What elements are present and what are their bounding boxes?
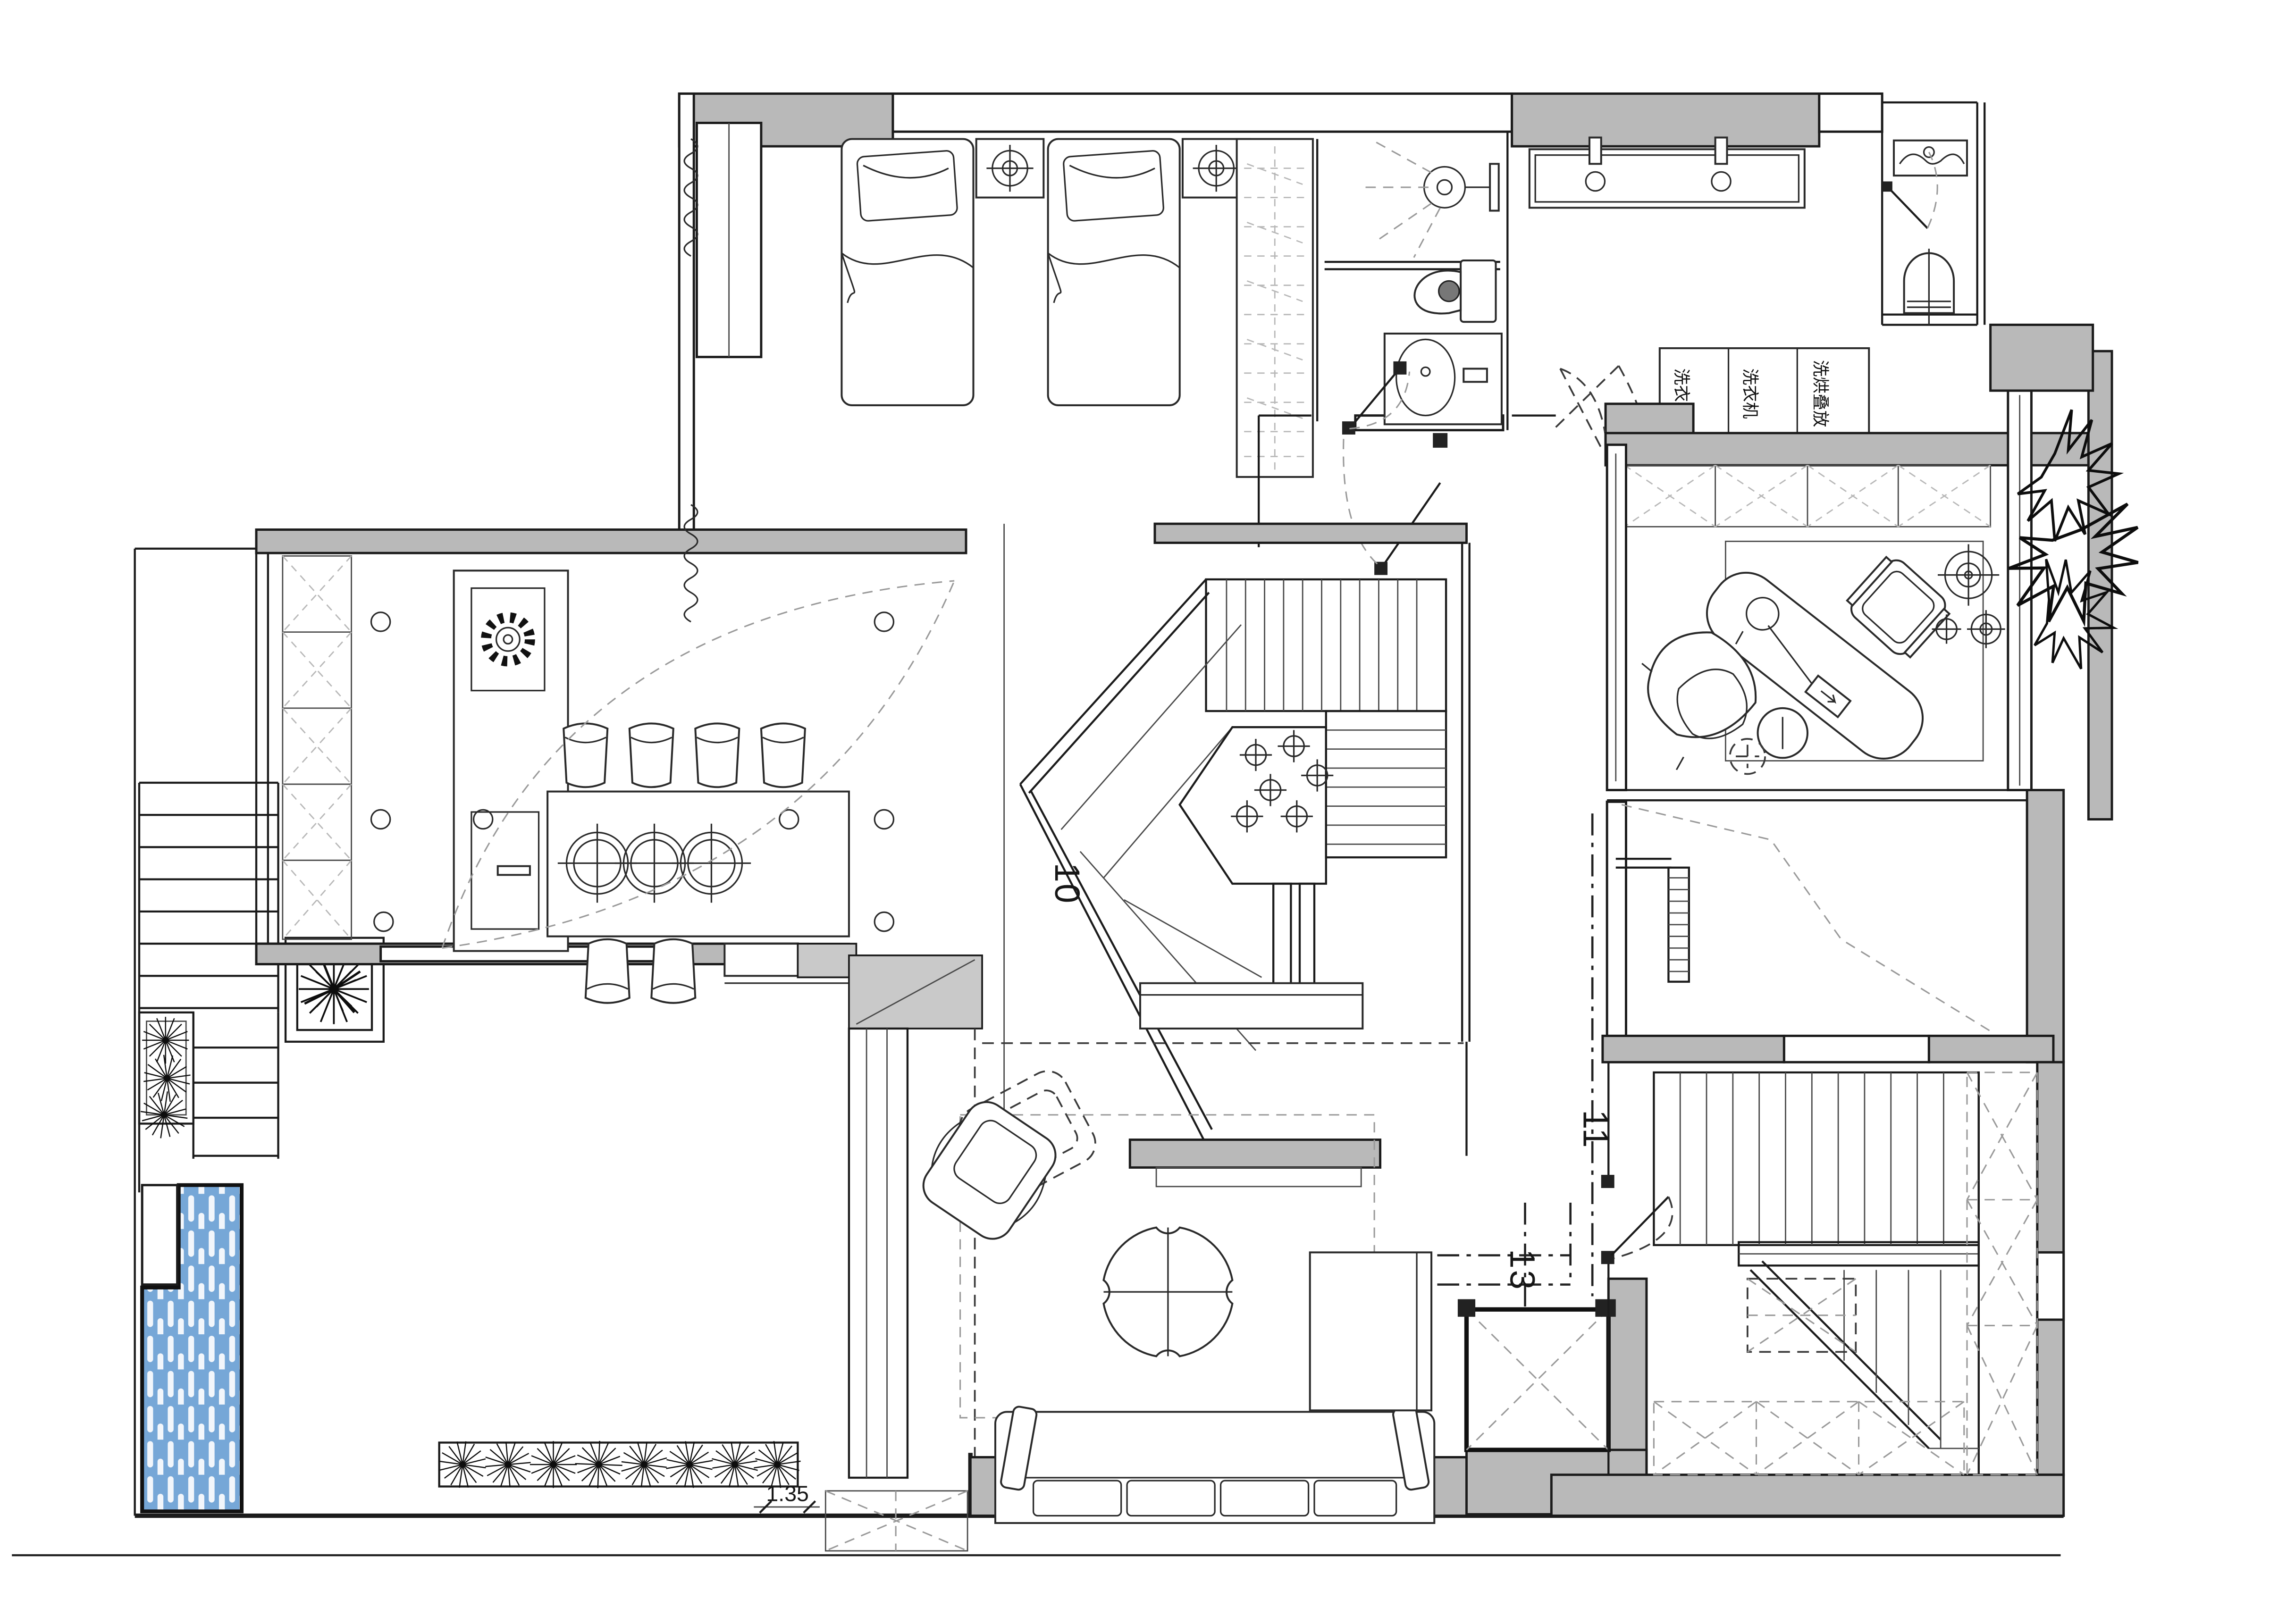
coffee-table xyxy=(1103,1228,1232,1356)
ceiling-fan-icons xyxy=(1932,544,2005,648)
tv-console xyxy=(1140,983,1362,1029)
stairs-upper-flight xyxy=(1654,1072,1978,1245)
flower-bed-row xyxy=(436,1431,809,1498)
elevator-zone-label: 13 xyxy=(1503,1249,1542,1291)
shower-head-icon xyxy=(1358,141,1499,258)
window-column xyxy=(849,1029,908,1478)
study-cabinets xyxy=(1624,465,1990,527)
wardrobe-row-dashed xyxy=(1654,1072,2037,1475)
study-room xyxy=(1606,391,2088,800)
kitchen-cabinets xyxy=(283,556,352,939)
living-room xyxy=(798,944,1478,1551)
desk-chair xyxy=(1842,552,1954,663)
floor-plan-canvas: 1.35 xyxy=(0,0,2295,1624)
washer-dryer-stack-label: 洗烘叠放 xyxy=(1811,360,1830,427)
nightstand-1 xyxy=(976,139,1044,198)
shrub-planter xyxy=(132,1013,196,1147)
upper-stair-label: 10 xyxy=(1048,862,1087,904)
hallway: 13 xyxy=(1344,368,1694,1309)
reflecting-pool xyxy=(142,1185,242,1512)
wardrobe xyxy=(1237,139,1313,477)
corridor-door-dashed xyxy=(1560,368,1607,447)
dining-kitchen xyxy=(256,553,954,1003)
understair-cabinet xyxy=(1748,1279,1856,1352)
kids-bedroom xyxy=(256,139,1317,622)
outdoor-stairs xyxy=(139,783,278,1192)
washing-machine-label-2: 洗衣机 xyxy=(1741,368,1760,419)
stair-room-door xyxy=(1601,1175,1673,1264)
bathroom-master: 洗衣机 洗衣机 洗烘叠放 xyxy=(1512,137,1869,442)
sofa xyxy=(995,1406,1434,1523)
lower-stair-label: 11 xyxy=(1576,1110,1615,1149)
sofa-side-table xyxy=(1310,1252,1431,1410)
bed-twin-2 xyxy=(1048,139,1180,405)
wall-hook-icon xyxy=(1894,141,1967,176)
wc-toilet-icon xyxy=(1904,249,1954,325)
vanity-counter xyxy=(1530,137,1805,208)
dining-table xyxy=(547,792,849,937)
armchair xyxy=(910,1090,1069,1250)
central-staircase: 10 xyxy=(1004,524,1470,1187)
bedroom-door xyxy=(1344,433,1448,575)
ladder xyxy=(1668,868,1689,982)
dimension-text: 1.35 xyxy=(766,1482,809,1506)
terrace-paving xyxy=(825,1491,967,1551)
void-room xyxy=(1607,802,1993,1036)
wc-room xyxy=(1882,102,1984,325)
sink-icon xyxy=(1385,334,1502,424)
bed-twin-1 xyxy=(841,139,973,405)
